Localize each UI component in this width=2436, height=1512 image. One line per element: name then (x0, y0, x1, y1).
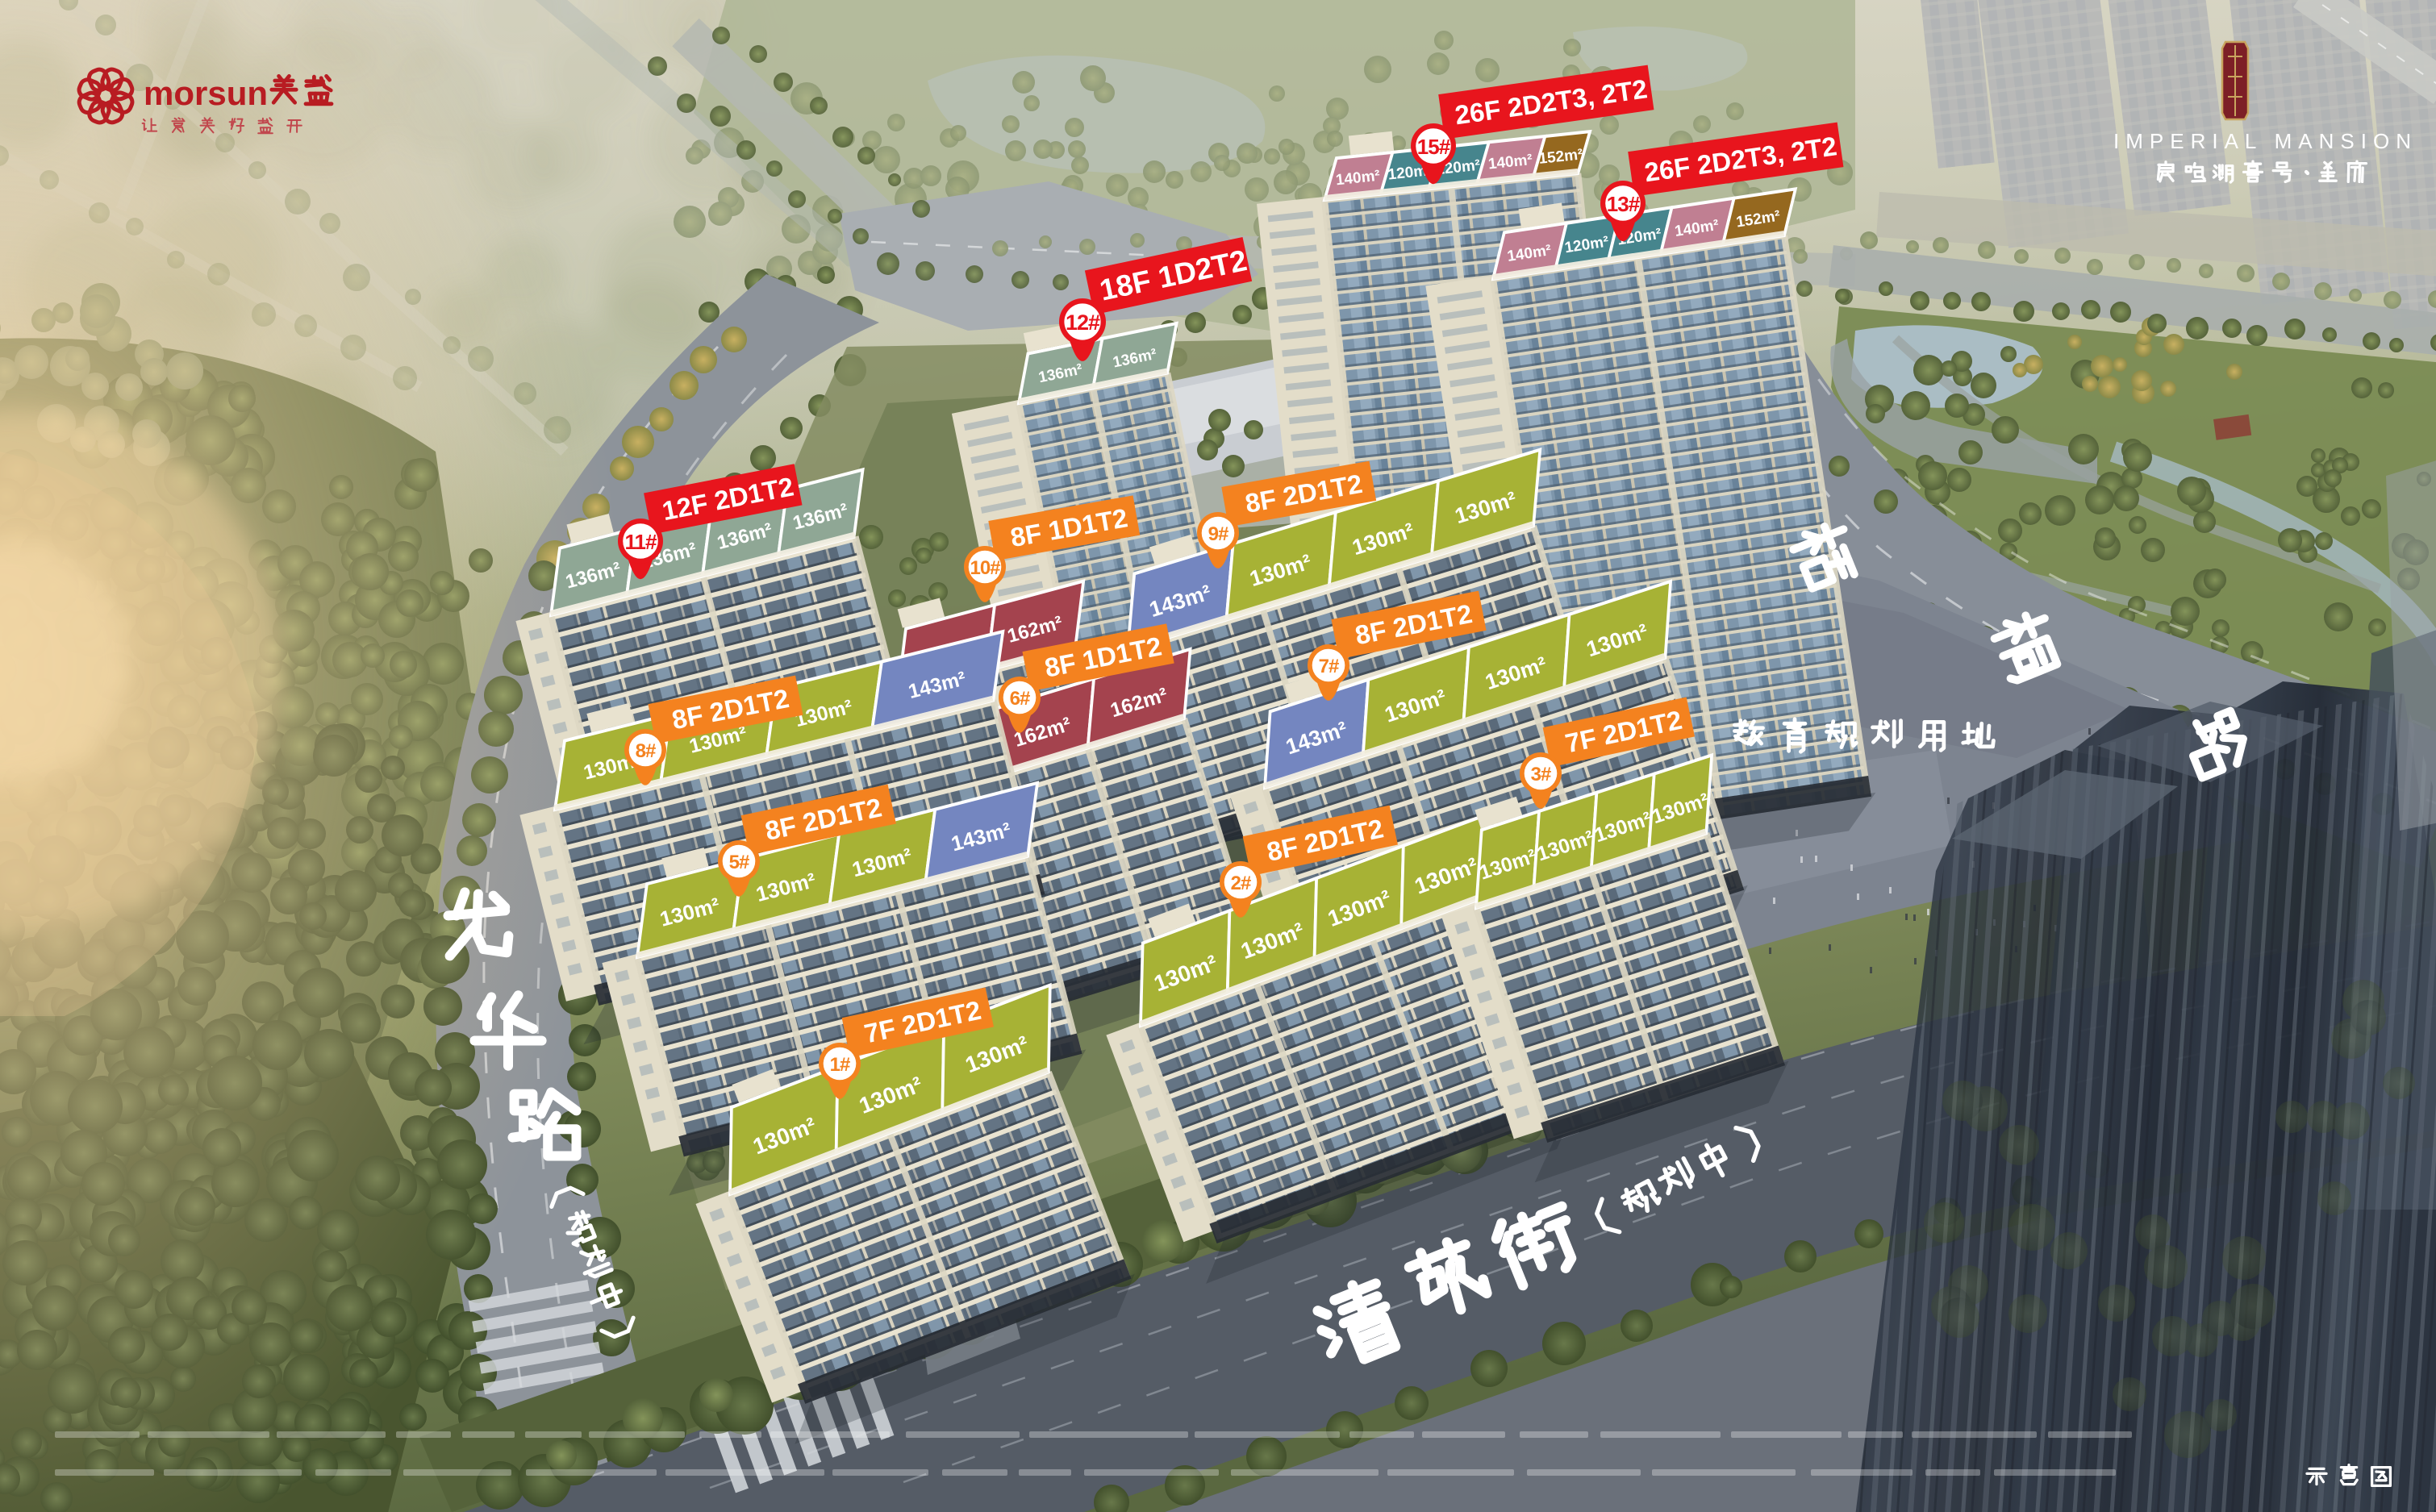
svg-text:3#: 3# (1531, 764, 1551, 785)
svg-text:15#: 15# (1417, 135, 1451, 159)
svg-text:5#: 5# (729, 852, 749, 873)
svg-text:6#: 6# (1010, 688, 1030, 710)
svg-text:7#: 7# (1319, 656, 1339, 677)
svg-text:8#: 8# (636, 740, 656, 762)
svg-text:11#: 11# (625, 530, 657, 554)
svg-text:IMPERIAL MANSION: IMPERIAL MANSION (2113, 129, 2417, 153)
svg-text:9#: 9# (1208, 523, 1228, 545)
svg-text:morsun: morsun (144, 74, 268, 112)
svg-text:12#: 12# (1066, 310, 1100, 335)
svg-text:2#: 2# (1231, 873, 1251, 894)
svg-text:10#: 10# (970, 557, 1000, 579)
svg-text:1#: 1# (830, 1054, 850, 1076)
svg-text:13#: 13# (1607, 192, 1641, 216)
